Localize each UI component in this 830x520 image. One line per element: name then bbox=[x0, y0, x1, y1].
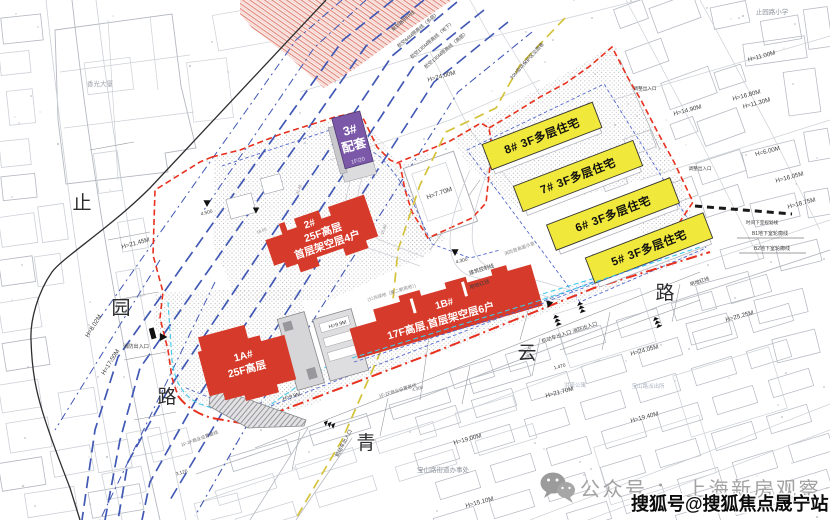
svg-text:时间下室规划线: 时间下室规划线 bbox=[746, 219, 779, 226]
svg-text:香光大厦: 香光大厦 bbox=[87, 79, 114, 88]
svg-text:调整出入口: 调整出入口 bbox=[634, 85, 657, 92]
svg-text:洪流公寓: 洪流公寓 bbox=[564, 381, 587, 389]
svg-text:园: 园 bbox=[111, 298, 130, 319]
svg-text:云: 云 bbox=[517, 343, 536, 364]
svg-text:路: 路 bbox=[157, 386, 176, 408]
svg-text:宝山路街道办事处: 宝山路街道办事处 bbox=[417, 465, 470, 474]
svg-text:止: 止 bbox=[72, 192, 91, 214]
svg-text:调整出入口: 调整出入口 bbox=[689, 165, 712, 172]
svg-text:止园路小学: 止园路小学 bbox=[756, 7, 789, 16]
svg-text:搜狐号@搜狐焦点晟宁站: 搜狐号@搜狐焦点晟宁站 bbox=[631, 493, 829, 514]
svg-text:青: 青 bbox=[356, 432, 375, 454]
svg-text:B1地下室轮廓线: B1地下室轮廓线 bbox=[752, 230, 788, 237]
svg-text:消防出入口: 消防出入口 bbox=[123, 342, 149, 350]
svg-text:路: 路 bbox=[655, 282, 674, 304]
svg-text:B2地下室轮廓线: B2地下室轮廓线 bbox=[754, 245, 790, 252]
svg-text:宝山路派出所: 宝山路派出所 bbox=[631, 382, 665, 390]
